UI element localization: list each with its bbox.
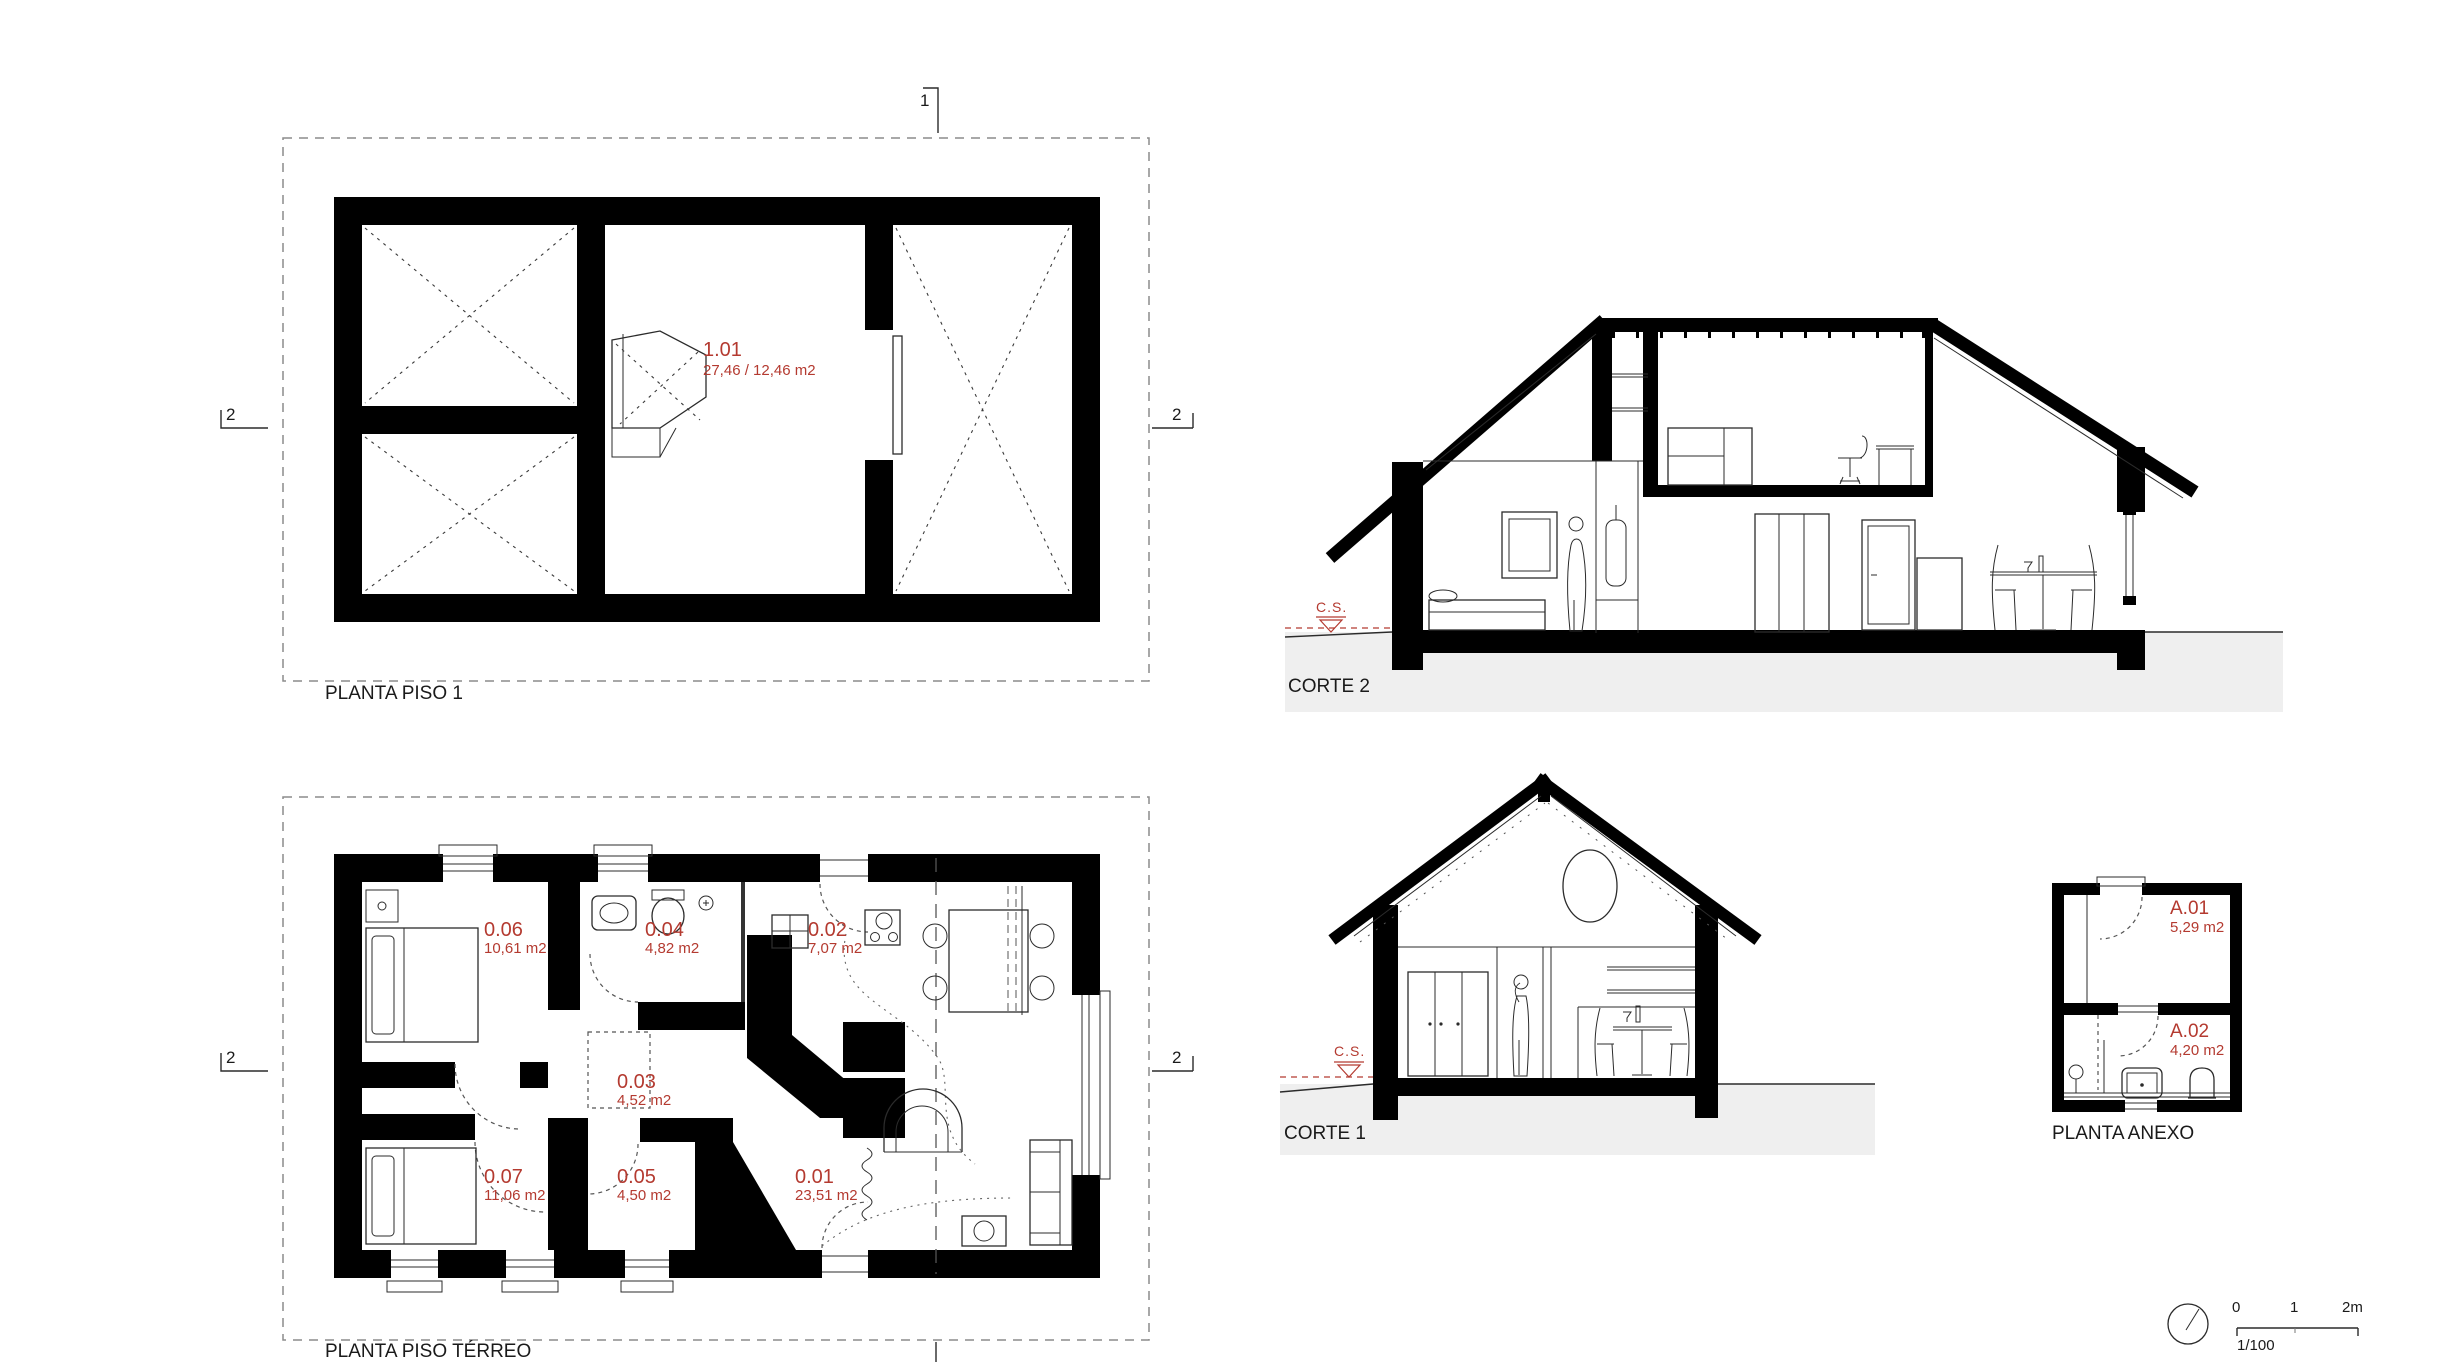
scale-ratio: 1/100 [2237, 1338, 2275, 1354]
room-label-0-04: 0.04 [645, 920, 684, 941]
north-indicator-icon [2168, 1304, 2208, 1344]
section-marker-2-right-terreo: 2 [1172, 1049, 1181, 1067]
section-marker-2-left: 2 [226, 406, 235, 424]
section-marker-2-left-terreo: 2 [226, 1049, 235, 1067]
corte-1-drawing [1280, 778, 1875, 1155]
corte-2-drawing [1285, 318, 2283, 712]
room-area-1-01: 27,46 / 12,46 m2 [703, 363, 816, 379]
room-label-0-02: 0.02 [808, 920, 847, 941]
level-marker-cs-corte1: C.S. [1334, 1044, 1365, 1059]
room-area-a-01: 5,29 m2 [2170, 920, 2224, 936]
level-marker-cs-corte2: C.S. [1316, 600, 1347, 615]
architectural-sheet: 1 2 2 1.01 27,46 / 12,46 m2 PLANTA PISO … [0, 0, 2462, 1362]
plan1-door-leaf [893, 336, 902, 454]
planta-piso-1-drawing [221, 88, 1193, 681]
room-area-a-02: 4,20 m2 [2170, 1043, 2224, 1059]
room-label-0-07: 0.07 [484, 1167, 523, 1188]
scale-tick-2m: 2m [2342, 1300, 2363, 1316]
room-label-0-01: 0.01 [795, 1167, 834, 1188]
planta-anexo-drawing [2052, 877, 2242, 1112]
plan1-walls [334, 197, 1100, 622]
corte1-round-window [1563, 850, 1617, 922]
linework-canvas [0, 0, 2462, 1362]
planta-piso-terreo-drawing [221, 797, 1193, 1362]
title-planta-piso-1: PLANTA PISO 1 [325, 684, 463, 704]
room-label-a-02: A.02 [2170, 1022, 2209, 1042]
room-area-0-04: 4,82 m2 [645, 941, 699, 957]
room-label-1-01: 1.01 [703, 340, 742, 361]
title-planta-piso-terreo: PLANTA PISO TÉRREO [325, 1342, 531, 1362]
room-area-0-06: 10,61 m2 [484, 941, 547, 957]
title-corte-2: CORTE 2 [1288, 677, 1370, 697]
corte1-level-marker [1280, 1062, 1373, 1077]
room-area-0-07: 11,06 m2 [484, 1188, 545, 1204]
title-corte-1: CORTE 1 [1284, 1124, 1366, 1144]
room-area-0-02: 7,07 m2 [808, 941, 862, 957]
room-label-0-06: 0.06 [484, 920, 523, 941]
room-label-0-03: 0.03 [617, 1072, 656, 1093]
room-label-0-05: 0.05 [617, 1167, 656, 1188]
corte2-level-marker [1285, 617, 1392, 632]
room-label-a-01: A.01 [2170, 899, 2209, 919]
title-planta-anexo: PLANTA ANEXO [2052, 1124, 2194, 1144]
scale-tick-0: 0 [2232, 1300, 2240, 1316]
room-area-0-05: 4,50 m2 [617, 1188, 671, 1204]
section-marker-1-top: 1 [920, 92, 929, 110]
room-area-0-01: 23,51 m2 [795, 1188, 858, 1204]
scale-tick-1: 1 [2290, 1300, 2298, 1316]
room-area-0-03: 4,52 m2 [617, 1093, 671, 1109]
section-marker-2-right: 2 [1172, 406, 1181, 424]
plan1-stair-symbol [612, 331, 706, 457]
